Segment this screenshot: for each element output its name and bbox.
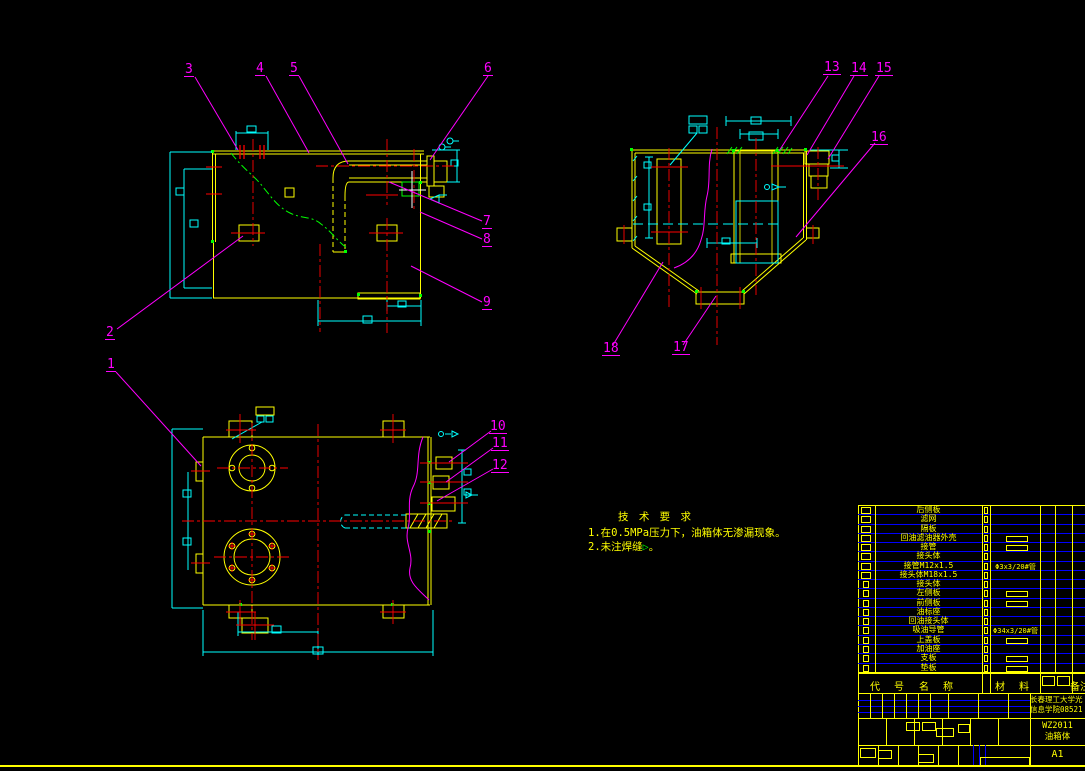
part-name: 加油座	[876, 645, 981, 653]
item-number-box	[861, 572, 871, 579]
item-number-box	[861, 516, 871, 523]
drawing-number-cell: WZ2011 油箱体	[1030, 719, 1085, 745]
organization-line-1: 长春理工大学光	[1030, 695, 1085, 705]
tech-req-item-2: 2.未注焊缝▷。	[588, 540, 786, 555]
material-placeholder-box	[1006, 666, 1028, 672]
parts-list-row: 滤网	[858, 515, 1085, 524]
parts-list-row: 接管M12x1.5Φ3x3/20#管	[858, 562, 1085, 571]
balloon-15: 15	[875, 62, 893, 76]
organization-name: 长春理工大学光 信息学院08521	[1030, 695, 1085, 718]
part-name: 后侧板	[876, 506, 981, 514]
part-material: Φ3x3/20#管	[992, 563, 1039, 571]
front-view-centerlines	[206, 139, 456, 333]
part-name: 接头体	[876, 552, 981, 560]
parts-list-row: 支板	[858, 654, 1085, 663]
column-line	[875, 506, 876, 674]
top-view-centerlines	[182, 414, 468, 660]
quantity-mark	[984, 590, 988, 597]
quantity-mark	[984, 526, 988, 533]
tech-req-title: 技 术 要 求	[618, 510, 786, 524]
balloon-9: 9	[482, 296, 492, 310]
signature-box	[958, 724, 970, 733]
grid-line	[906, 694, 907, 718]
quantity-mark	[984, 600, 988, 607]
column-line	[990, 674, 991, 694]
balloon-5: 5	[289, 62, 299, 76]
grid-line	[973, 745, 974, 765]
part-name: 回油接头体	[876, 617, 981, 625]
item-number-box	[861, 563, 871, 570]
grid-line	[998, 718, 999, 745]
part-name: 接头体M18x1.5	[876, 571, 981, 579]
parts-list-row: 后侧板	[858, 506, 1085, 515]
item-number-box	[861, 544, 871, 551]
column-line	[1072, 674, 1073, 694]
quantity-mark	[984, 572, 988, 579]
parts-list-row: 回油接头体	[858, 617, 1085, 626]
parts-list-row: 接头体	[858, 552, 1085, 561]
balloon-6: 6	[483, 62, 493, 76]
grid-line	[882, 694, 883, 718]
material-placeholder-box	[1006, 591, 1028, 597]
parts-list-row: 接头体M18x1.5	[858, 571, 1085, 580]
tech-req-item-2-suffix: 。	[649, 541, 660, 553]
material-placeholder-box	[1006, 638, 1028, 644]
parts-list-row: 油标座	[858, 608, 1085, 617]
technical-requirements: 技 术 要 求 1.在0.5MPa压力下，油箱体无渗漏现象。 2.未注焊缝▷。	[588, 510, 786, 555]
part-title: 油箱体	[1030, 732, 1085, 743]
column-line	[1040, 674, 1041, 694]
balloon-12: 12	[491, 459, 509, 473]
item-number-box	[863, 665, 869, 672]
cad-drawing-canvas[interactable]: 1 2 3 4 5 6 7 8 9 10 11 12 13 14 15 16 1…	[0, 0, 1085, 771]
part-name: 接管M12x1.5	[876, 562, 981, 570]
grid-line	[894, 694, 895, 718]
part-name: 油标座	[876, 608, 981, 616]
drawing-number: WZ2011	[1030, 721, 1085, 732]
item-number-box	[863, 600, 869, 607]
part-name: 回油滤油器外壳	[876, 534, 981, 542]
part-name: 吸油导管	[876, 626, 981, 634]
parts-list-row: 回油滤油器外壳	[858, 534, 1085, 543]
quantity-mark	[984, 581, 988, 588]
part-name: 接头体	[876, 580, 981, 588]
column-line	[982, 506, 983, 674]
parts-list-row: 接管	[858, 543, 1085, 552]
organization-line-2: 信息学院08521	[1030, 705, 1085, 715]
part-name: 垫板	[876, 664, 981, 672]
top-view-dimensions	[172, 416, 478, 656]
part-name: 接管	[876, 543, 981, 551]
balloon-17: 17	[672, 341, 690, 355]
grid-line	[970, 718, 971, 745]
balloon-4: 4	[255, 62, 265, 76]
quantity-mark	[984, 609, 988, 616]
parts-list-row: 前侧板	[858, 599, 1085, 608]
title-block: 长春理工大学光 信息学院08521 WZ2011 油箱体 A1	[858, 694, 1085, 766]
item-number-box	[863, 646, 869, 653]
item-number-box	[861, 507, 871, 514]
column-line	[1072, 506, 1073, 674]
quantity-mark	[984, 553, 988, 560]
weld-dots	[211, 150, 422, 297]
parts-list-row: 左侧板	[858, 589, 1085, 598]
material-placeholder-box	[1006, 601, 1028, 607]
sheet-size: A1	[1030, 745, 1085, 766]
tech-req-item-1: 1.在0.5MPa压力下，油箱体无渗漏现象。	[588, 526, 786, 540]
signature-box	[922, 722, 936, 731]
column-line	[1040, 506, 1041, 674]
quantity-mark	[984, 507, 988, 514]
part-name: 支板	[876, 654, 981, 662]
balloon-13: 13	[823, 61, 841, 75]
signature-box	[878, 750, 892, 759]
drawing-frame-bottom-border	[0, 765, 1085, 767]
parts-list-row: 加油座	[858, 645, 1085, 654]
part-name: 隔板	[876, 525, 981, 533]
column-line	[982, 674, 983, 694]
grid-line	[858, 700, 1030, 701]
grid-line	[918, 694, 919, 718]
tech-req-item-2-text: 2.未注焊缝	[588, 541, 643, 553]
balloon-11: 11	[491, 437, 509, 451]
part-name: 滤网	[876, 515, 981, 523]
balloon-2: 2	[105, 326, 115, 340]
quantity-mark	[984, 516, 988, 523]
item-number-box	[863, 581, 869, 588]
header-material: 材 料	[984, 678, 1044, 693]
item-number-box	[863, 609, 869, 616]
material-placeholder-box	[1006, 536, 1028, 542]
header-minibox	[1057, 676, 1070, 686]
balloon-16: 16	[870, 131, 888, 145]
balloon-18: 18	[602, 342, 620, 356]
top-view	[172, 407, 478, 660]
balloon-3: 3	[184, 63, 194, 77]
parts-list-row: 上盖板	[858, 636, 1085, 645]
part-material: Φ34x3/20#管	[992, 627, 1039, 635]
grid-line	[978, 694, 979, 718]
grid-line	[1008, 694, 1009, 718]
item-number-box	[863, 627, 869, 634]
parts-list-row: 吸油导管Φ34x3/20#管	[858, 626, 1085, 635]
item-number-box	[863, 618, 869, 625]
balloon-7: 7	[482, 215, 492, 229]
front-view	[170, 126, 460, 333]
balloon-1: 1	[106, 358, 116, 372]
column-line	[990, 506, 991, 674]
signature-box	[860, 748, 876, 758]
signature-box	[936, 728, 954, 737]
side-view	[617, 116, 848, 345]
quantity-mark	[984, 544, 988, 551]
quantity-mark	[984, 535, 988, 542]
parts-list-header: 代 号 名 称 材 料 备注	[858, 672, 1085, 694]
side-view-dimensions	[633, 116, 848, 263]
material-placeholder-box	[1006, 656, 1028, 662]
break-line	[407, 437, 429, 600]
signature-box	[918, 754, 934, 763]
grid-line	[858, 712, 1030, 713]
item-number-box	[863, 637, 869, 644]
parts-list-rows: 后侧板滤网隔板回油滤油器外壳接管接头体接管M12x1.5Φ3x3/20#管接头体…	[858, 506, 1085, 673]
grid-line	[898, 745, 899, 766]
quantity-mark	[984, 637, 988, 644]
header-minibox	[1042, 676, 1055, 686]
grid-line	[958, 745, 959, 766]
balloon-14: 14	[850, 62, 868, 76]
part-name: 上盖板	[876, 636, 981, 644]
quantity-mark	[984, 646, 988, 653]
column-line	[1055, 506, 1056, 674]
quantity-mark	[984, 655, 988, 662]
item-number-box	[861, 535, 871, 542]
grid-line	[930, 694, 931, 718]
item-number-box	[863, 655, 869, 662]
grid-line	[938, 745, 939, 766]
header-name: 名 称	[908, 678, 968, 693]
balloon-8: 8	[482, 233, 492, 247]
grid-line	[948, 694, 949, 718]
quantity-mark	[984, 618, 988, 625]
parts-list-row: 隔板	[858, 525, 1085, 534]
parts-list: 后侧板滤网隔板回油滤油器外壳接管接头体接管M12x1.5Φ3x3/20#管接头体…	[858, 505, 1085, 673]
highlight-cross	[399, 171, 426, 208]
item-number-box	[861, 553, 871, 560]
item-number-box	[861, 526, 871, 533]
quantity-mark	[984, 665, 988, 672]
quantity-mark	[984, 627, 988, 634]
signature-box	[906, 722, 920, 731]
quantity-mark	[984, 563, 988, 570]
part-name: 前侧板	[876, 599, 981, 607]
material-placeholder-box	[1006, 545, 1028, 551]
part-name: 左侧板	[876, 589, 981, 597]
grid-line	[870, 694, 871, 718]
grid-line	[858, 706, 1030, 707]
balloon-10: 10	[489, 420, 507, 434]
item-number-box	[863, 590, 869, 597]
grid-line	[886, 718, 887, 745]
parts-list-row: 接头体	[858, 580, 1085, 589]
